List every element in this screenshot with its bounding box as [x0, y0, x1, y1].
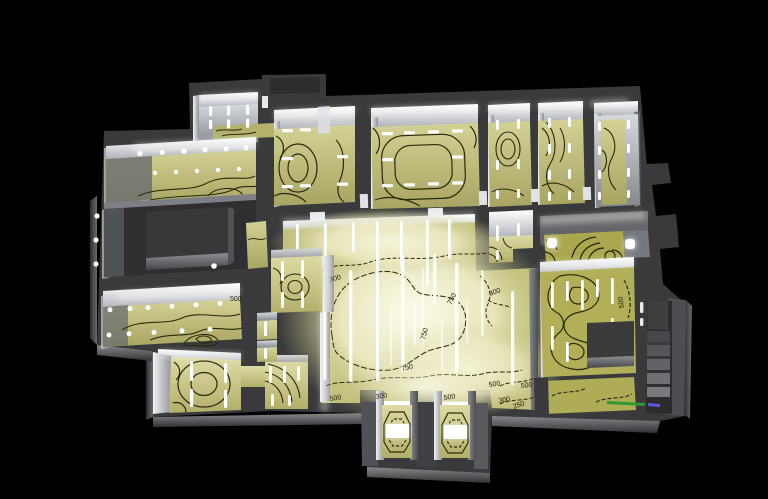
- svg-text:500: 500: [520, 382, 532, 390]
- svg-text:500: 500: [618, 296, 626, 309]
- svg-text:500: 500: [230, 296, 242, 303]
